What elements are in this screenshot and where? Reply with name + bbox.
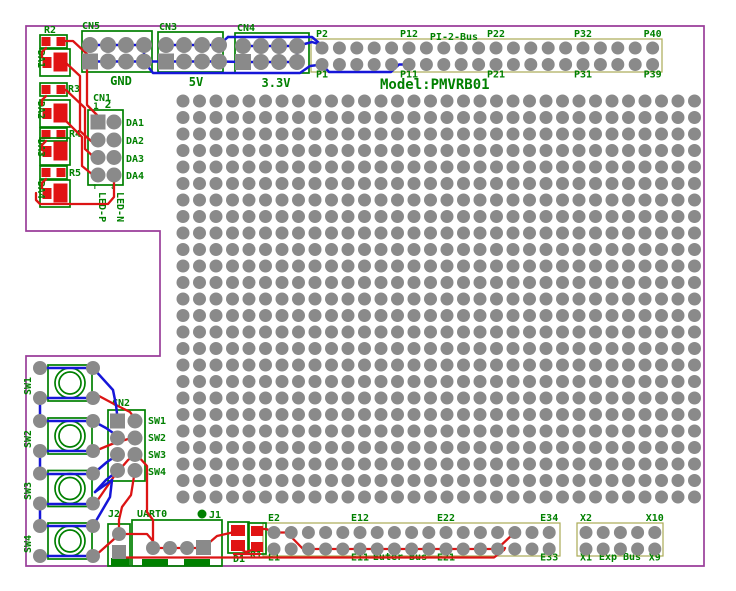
grid-pad[interactable] [325,144,338,157]
grid-pad[interactable] [457,441,470,454]
grid-pad[interactable] [276,458,289,471]
grid-pad[interactable] [243,95,256,108]
grid-pad[interactable] [688,276,701,289]
cn1-pin1-pad[interactable] [91,115,106,130]
grid-pad[interactable] [639,375,652,388]
grid-pad[interactable] [177,326,190,339]
grid-pad[interactable] [606,111,619,124]
grid-pad[interactable] [457,458,470,471]
grid-pad[interactable] [490,342,503,355]
grid-pad[interactable] [639,111,652,124]
grid-pad[interactable] [507,128,520,141]
p_bus-pad[interactable] [420,42,433,55]
grid-pad[interactable] [655,491,668,504]
grid-pad[interactable] [655,342,668,355]
grid-pad[interactable] [193,276,206,289]
switch-sw2[interactable] [48,418,92,454]
grid-pad[interactable] [490,210,503,223]
grid-pad[interactable] [226,342,239,355]
grid-pad[interactable] [243,260,256,273]
grid-pad[interactable] [688,95,701,108]
grid-pad[interactable] [375,128,388,141]
grid-pad[interactable] [408,111,421,124]
grid-pad[interactable] [688,359,701,372]
e_bus-pad[interactable] [440,543,453,556]
grid-pad[interactable] [556,441,569,454]
resistor-r3[interactable] [40,83,67,96]
grid-pad[interactable] [655,359,668,372]
grid-pad[interactable] [424,474,437,487]
grid-pad[interactable] [391,276,404,289]
grid-pad[interactable] [540,95,553,108]
grid-pad[interactable] [391,128,404,141]
grid-pad[interactable] [408,375,421,388]
grid-pad[interactable] [688,161,701,174]
grid-pad[interactable] [243,425,256,438]
cn1-pin-pad[interactable] [107,150,122,165]
grid-pad[interactable] [474,458,487,471]
grid-pad[interactable] [490,161,503,174]
grid-pad[interactable] [655,441,668,454]
grid-pad[interactable] [523,326,536,339]
grid-pad[interactable] [424,408,437,421]
grid-pad[interactable] [342,474,355,487]
grid-pad[interactable] [391,144,404,157]
grid-pad[interactable] [292,326,305,339]
e_bus-pad[interactable] [474,526,487,539]
grid-pad[interactable] [672,326,685,339]
grid-pad[interactable] [226,111,239,124]
e_bus-pad[interactable] [457,543,470,556]
grid-pad[interactable] [391,474,404,487]
grid-pad[interactable] [441,309,454,322]
grid-pad[interactable] [391,359,404,372]
grid-pad[interactable] [391,441,404,454]
grid-pad[interactable] [408,243,421,256]
grid-pad[interactable] [622,491,635,504]
grid-pad[interactable] [589,210,602,223]
grid-pad[interactable] [573,342,586,355]
grid-pad[interactable] [325,326,338,339]
grid-pad[interactable] [507,491,520,504]
grid-pad[interactable] [490,309,503,322]
p_bus-pad[interactable] [472,42,485,55]
p_bus-pad[interactable] [577,42,590,55]
grid-pad[interactable] [243,276,256,289]
grid-pad[interactable] [424,441,437,454]
grid-pad[interactable] [507,326,520,339]
grid-pad[interactable] [210,95,223,108]
grid-pad[interactable] [342,227,355,240]
x_bus-pad[interactable] [597,526,610,539]
grid-pad[interactable] [193,111,206,124]
grid-pad[interactable] [342,359,355,372]
grid-pad[interactable] [490,392,503,405]
grid-pad[interactable] [358,326,371,339]
grid-pad[interactable] [507,227,520,240]
switch-pin-pad[interactable] [86,467,100,481]
grid-pad[interactable] [490,474,503,487]
grid-pad[interactable] [474,342,487,355]
grid-pad[interactable] [276,342,289,355]
grid-pad[interactable] [375,474,388,487]
grid-pad[interactable] [309,227,322,240]
x_bus-pad[interactable] [614,526,627,539]
grid-pad[interactable] [391,326,404,339]
grid-pad[interactable] [375,161,388,174]
grid-pad[interactable] [408,309,421,322]
cn3-pin-pad[interactable] [211,37,227,53]
grid-pad[interactable] [210,111,223,124]
grid-pad[interactable] [507,342,520,355]
grid-pad[interactable] [556,458,569,471]
grid-pad[interactable] [342,309,355,322]
grid-pad[interactable] [639,161,652,174]
grid-pad[interactable] [226,458,239,471]
grid-pad[interactable] [606,227,619,240]
grid-pad[interactable] [408,260,421,273]
grid-pad[interactable] [606,210,619,223]
p_bus-pad[interactable] [403,42,416,55]
grid-pad[interactable] [441,326,454,339]
p_bus-pad[interactable] [524,58,537,71]
grid-pad[interactable] [589,95,602,108]
e_bus-pad[interactable] [526,543,539,556]
grid-pad[interactable] [589,491,602,504]
grid-pad[interactable] [177,375,190,388]
grid-pad[interactable] [292,458,305,471]
grid-pad[interactable] [622,359,635,372]
grid-pad[interactable] [523,95,536,108]
p_bus-pad[interactable] [350,58,363,71]
grid-pad[interactable] [573,392,586,405]
grid-pad[interactable] [342,326,355,339]
grid-pad[interactable] [457,359,470,372]
grid-pad[interactable] [490,491,503,504]
p_bus-pad[interactable] [368,42,381,55]
grid-pad[interactable] [226,359,239,372]
grid-pad[interactable] [210,425,223,438]
cn2-pin-pad[interactable] [110,447,125,462]
grid-pad[interactable] [309,342,322,355]
grid-pad[interactable] [358,342,371,355]
grid-pad[interactable] [193,408,206,421]
grid-pad[interactable] [358,276,371,289]
grid-pad[interactable] [589,359,602,372]
grid-pad[interactable] [474,309,487,322]
grid-pad[interactable] [507,309,520,322]
grid-pad[interactable] [210,474,223,487]
grid-pad[interactable] [655,375,668,388]
grid-pad[interactable] [210,441,223,454]
grid-pad[interactable] [325,458,338,471]
grid-pad[interactable] [672,474,685,487]
e_bus-pad[interactable] [371,543,384,556]
grid-pad[interactable] [193,359,206,372]
grid-pad[interactable] [540,359,553,372]
grid-pad[interactable] [292,359,305,372]
grid-pad[interactable] [540,491,553,504]
grid-pad[interactable] [391,408,404,421]
grid-pad[interactable] [177,474,190,487]
grid-pad[interactable] [474,326,487,339]
grid-pad[interactable] [358,128,371,141]
p_bus-pad[interactable] [385,42,398,55]
grid-pad[interactable] [325,128,338,141]
grid-pad[interactable] [441,392,454,405]
grid-pad[interactable] [523,309,536,322]
grid-pad[interactable] [573,177,586,190]
grid-pad[interactable] [408,458,421,471]
grid-pad[interactable] [276,161,289,174]
grid-pad[interactable] [688,425,701,438]
grid-pad[interactable] [573,375,586,388]
grid-pad[interactable] [325,194,338,207]
e_bus-pad[interactable] [422,543,435,556]
grid-pad[interactable] [639,276,652,289]
grid-pad[interactable] [639,293,652,306]
p_bus-pad[interactable] [385,58,398,71]
grid-pad[interactable] [358,260,371,273]
grid-pad[interactable] [276,392,289,405]
grid-pad[interactable] [325,425,338,438]
grid-pad[interactable] [259,425,272,438]
e_bus-pad[interactable] [268,543,281,556]
grid-pad[interactable] [424,309,437,322]
grid-pad[interactable] [441,276,454,289]
grid-pad[interactable] [193,342,206,355]
grid-pad[interactable] [589,111,602,124]
grid-pad[interactable] [655,227,668,240]
grid-pad[interactable] [573,144,586,157]
grid-pad[interactable] [243,128,256,141]
grid-pad[interactable] [259,293,272,306]
grid-pad[interactable] [292,243,305,256]
grid-pad[interactable] [606,408,619,421]
grid-pad[interactable] [672,441,685,454]
p_bus-pad[interactable] [333,42,346,55]
grid-pad[interactable] [556,161,569,174]
cn2-pin-pad[interactable] [128,463,143,478]
grid-pad[interactable] [441,458,454,471]
grid-pad[interactable] [672,144,685,157]
grid-pad[interactable] [325,491,338,504]
grid-pad[interactable] [342,293,355,306]
grid-pad[interactable] [375,293,388,306]
grid-pad[interactable] [622,408,635,421]
grid-pad[interactable] [523,111,536,124]
grid-pad[interactable] [457,474,470,487]
grid-pad[interactable] [243,177,256,190]
grid-pad[interactable] [540,441,553,454]
grid-pad[interactable] [325,210,338,223]
grid-pad[interactable] [424,194,437,207]
grid-pad[interactable] [342,144,355,157]
grid-pad[interactable] [375,243,388,256]
grid-pad[interactable] [292,210,305,223]
grid-pad[interactable] [424,342,437,355]
grid-pad[interactable] [606,491,619,504]
grid-pad[interactable] [606,177,619,190]
x_bus-pad[interactable] [631,543,644,556]
grid-pad[interactable] [573,326,586,339]
grid-pad[interactable] [309,392,322,405]
grid-pad[interactable] [639,227,652,240]
grid-pad[interactable] [523,161,536,174]
grid-pad[interactable] [622,375,635,388]
grid-pad[interactable] [243,408,256,421]
grid-pad[interactable] [540,408,553,421]
grid-pad[interactable] [573,474,586,487]
e_bus-pad[interactable] [422,526,435,539]
grid-pad[interactable] [655,425,668,438]
e_bus-pad[interactable] [302,543,315,556]
grid-pad[interactable] [606,425,619,438]
grid-pad[interactable] [243,243,256,256]
grid-pad[interactable] [408,144,421,157]
grid-pad[interactable] [309,95,322,108]
grid-pad[interactable] [556,309,569,322]
p_bus-pad[interactable] [350,42,363,55]
grid-pad[interactable] [606,342,619,355]
grid-pad[interactable] [358,194,371,207]
switch-pin-pad[interactable] [33,444,47,458]
cn5-pin-pad[interactable] [100,37,116,53]
grid-pad[interactable] [424,293,437,306]
grid-pad[interactable] [507,458,520,471]
grid-pad[interactable] [177,260,190,273]
grid-pad[interactable] [490,326,503,339]
grid-pad[interactable] [507,260,520,273]
grid-pad[interactable] [309,276,322,289]
grid-pad[interactable] [589,243,602,256]
cn1-pin-pad[interactable] [107,115,122,130]
p_bus-pad[interactable] [646,42,659,55]
grid-pad[interactable] [408,441,421,454]
grid-pad[interactable] [556,194,569,207]
cn5-pin1-pad[interactable] [82,54,98,70]
grid-pad[interactable] [226,128,239,141]
grid-pad[interactable] [276,474,289,487]
grid-pad[interactable] [276,177,289,190]
grid-pad[interactable] [573,276,586,289]
grid-pad[interactable] [523,491,536,504]
grid-pad[interactable] [573,425,586,438]
grid-pad[interactable] [177,95,190,108]
grid-pad[interactable] [292,474,305,487]
grid-pad[interactable] [688,210,701,223]
grid-pad[interactable] [309,293,322,306]
grid-pad[interactable] [573,408,586,421]
grid-pad[interactable] [556,227,569,240]
grid-pad[interactable] [672,243,685,256]
grid-pad[interactable] [210,326,223,339]
cn1-pin-pad[interactable] [107,133,122,148]
grid-pad[interactable] [457,111,470,124]
grid-pad[interactable] [309,260,322,273]
grid-pad[interactable] [672,458,685,471]
grid-pad[interactable] [688,144,701,157]
grid-pad[interactable] [474,392,487,405]
grid-pad[interactable] [193,392,206,405]
grid-pad[interactable] [540,375,553,388]
grid-pad[interactable] [292,111,305,124]
grid-pad[interactable] [589,375,602,388]
grid-pad[interactable] [358,425,371,438]
grid-pad[interactable] [177,491,190,504]
p_bus-pad[interactable] [472,58,485,71]
grid-pad[interactable] [243,194,256,207]
grid-pad[interactable] [556,276,569,289]
grid-pad[interactable] [424,144,437,157]
grid-pad[interactable] [507,95,520,108]
grid-pad[interactable] [490,177,503,190]
grid-pad[interactable] [375,260,388,273]
cn4-pin-pad[interactable] [253,54,269,70]
grid-pad[interactable] [688,441,701,454]
grid-pad[interactable] [424,177,437,190]
grid-pad[interactable] [507,161,520,174]
grid-pad[interactable] [672,95,685,108]
grid-pad[interactable] [276,144,289,157]
grid-pad[interactable] [589,260,602,273]
grid-pad[interactable] [226,326,239,339]
grid-pad[interactable] [210,293,223,306]
grid-pad[interactable] [210,194,223,207]
grid-pad[interactable] [193,144,206,157]
grid-pad[interactable] [226,144,239,157]
grid-pad[interactable] [688,293,701,306]
grid-pad[interactable] [523,177,536,190]
grid-pad[interactable] [655,474,668,487]
grid-pad[interactable] [457,161,470,174]
grid-pad[interactable] [441,375,454,388]
grid-pad[interactable] [457,293,470,306]
grid-pad[interactable] [391,392,404,405]
grid-pad[interactable] [589,161,602,174]
grid-pad[interactable] [490,458,503,471]
grid-pad[interactable] [556,111,569,124]
switch-sw1[interactable] [48,365,92,401]
grid-pad[interactable] [622,458,635,471]
grid-pad[interactable] [375,227,388,240]
grid-pad[interactable] [540,392,553,405]
grid-pad[interactable] [507,243,520,256]
grid-pad[interactable] [573,441,586,454]
grid-pad[interactable] [276,243,289,256]
grid-pad[interactable] [325,276,338,289]
grid-pad[interactable] [309,375,322,388]
grid-pad[interactable] [540,161,553,174]
grid-pad[interactable] [540,128,553,141]
grid-pad[interactable] [309,194,322,207]
grid-pad[interactable] [259,408,272,421]
grid-pad[interactable] [441,491,454,504]
grid-pad[interactable] [358,392,371,405]
grid-pad[interactable] [589,293,602,306]
e_bus-pad[interactable] [543,543,556,556]
grid-pad[interactable] [507,177,520,190]
grid-pad[interactable] [358,408,371,421]
grid-pad[interactable] [672,392,685,405]
grid-pad[interactable] [672,342,685,355]
grid-pad[interactable] [210,491,223,504]
cn3-pin-pad[interactable] [194,54,210,70]
grid-pad[interactable] [226,375,239,388]
grid-pad[interactable] [375,326,388,339]
grid-pad[interactable] [342,128,355,141]
grid-pad[interactable] [292,95,305,108]
